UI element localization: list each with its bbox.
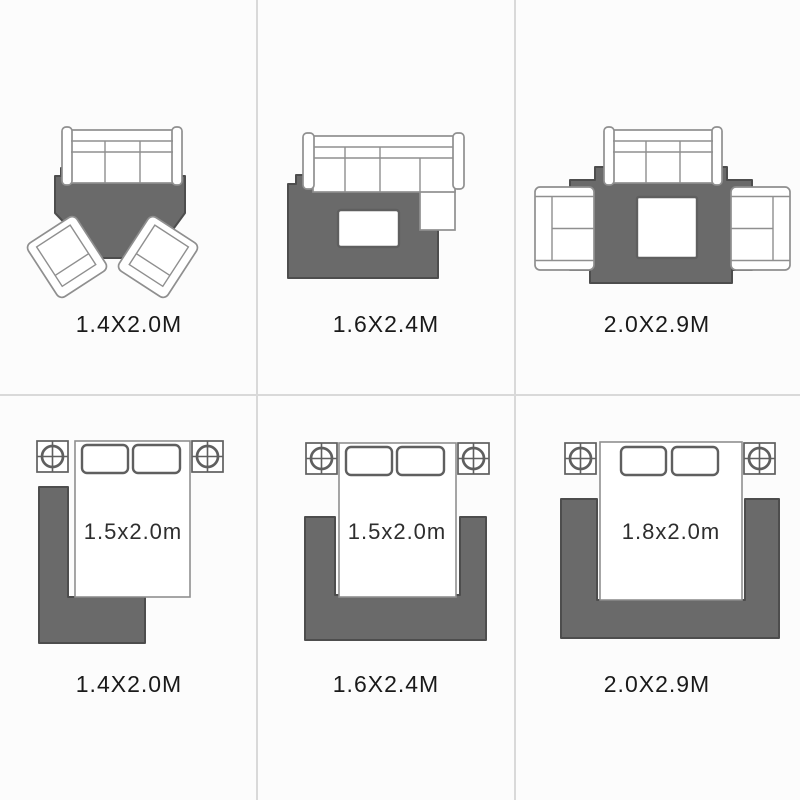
coffee-table-icon: [338, 210, 399, 247]
rug-size-label: 2.0X2.9M: [604, 671, 710, 697]
pillow-icon: [672, 447, 718, 475]
bed-size-label: 1.5x2.0m: [84, 519, 183, 544]
pillow-icon: [397, 447, 444, 475]
cell-living-small: 1.4X2.0M: [0, 0, 257, 395]
pillow-icon: [133, 445, 180, 473]
cell-bedroom-large: 1.8x2.0m 2.0X2.9M: [515, 395, 800, 800]
nightstand-left-icon: [37, 441, 68, 472]
nightstand-right-icon: [192, 441, 223, 472]
bed-size-label: 1.8x2.0m: [622, 519, 721, 544]
bedroom-large-diagram: 1.8x2.0m 2.0X2.9M: [515, 395, 800, 800]
loveseat-left-icon: [535, 187, 594, 270]
living-medium-diagram: 1.6X2.4M: [257, 0, 515, 395]
rug-size-label: 1.4X2.0M: [76, 311, 182, 337]
loveseat-right-icon: [731, 187, 790, 270]
nightstand-right-icon: [458, 443, 489, 474]
pillow-icon: [621, 447, 666, 475]
nightstand-left-icon: [565, 443, 596, 474]
grid-divider-horizontal: [0, 394, 800, 396]
cell-living-large: 2.0X2.9M: [515, 0, 800, 395]
rug-size-label: 1.6X2.4M: [333, 311, 439, 337]
cell-bedroom-medium: 1.5x2.0m 1.6X2.4M: [257, 395, 515, 800]
pillow-icon: [346, 447, 392, 475]
rug-size-guide: 1.4X2.0M 1.6X2.4M: [0, 0, 800, 800]
living-large-diagram: 2.0X2.9M: [515, 0, 800, 395]
bedroom-medium-diagram: 1.5x2.0m 1.6X2.4M: [257, 395, 515, 800]
sofa-icon: [62, 127, 182, 185]
nightstand-left-icon: [306, 443, 337, 474]
grid-divider-vertical-1: [256, 0, 258, 800]
nightstand-right-icon: [744, 443, 775, 474]
rug-size-label: 1.6X2.4M: [333, 671, 439, 697]
grid-divider-vertical-2: [514, 0, 516, 800]
rug-size-label: 2.0X2.9M: [604, 311, 710, 337]
sofa-icon: [604, 127, 722, 185]
bedroom-small-diagram: 1.5x2.0m 1.4X2.0M: [0, 395, 257, 800]
pillow-icon: [82, 445, 128, 473]
bed-size-label: 1.5x2.0m: [348, 519, 447, 544]
coffee-table-icon: [637, 197, 697, 258]
cell-living-medium: 1.6X2.4M: [257, 0, 515, 395]
rug-size-label: 1.4X2.0M: [76, 671, 182, 697]
cell-bedroom-small: 1.5x2.0m 1.4X2.0M: [0, 395, 257, 800]
living-small-diagram: 1.4X2.0M: [0, 0, 257, 395]
